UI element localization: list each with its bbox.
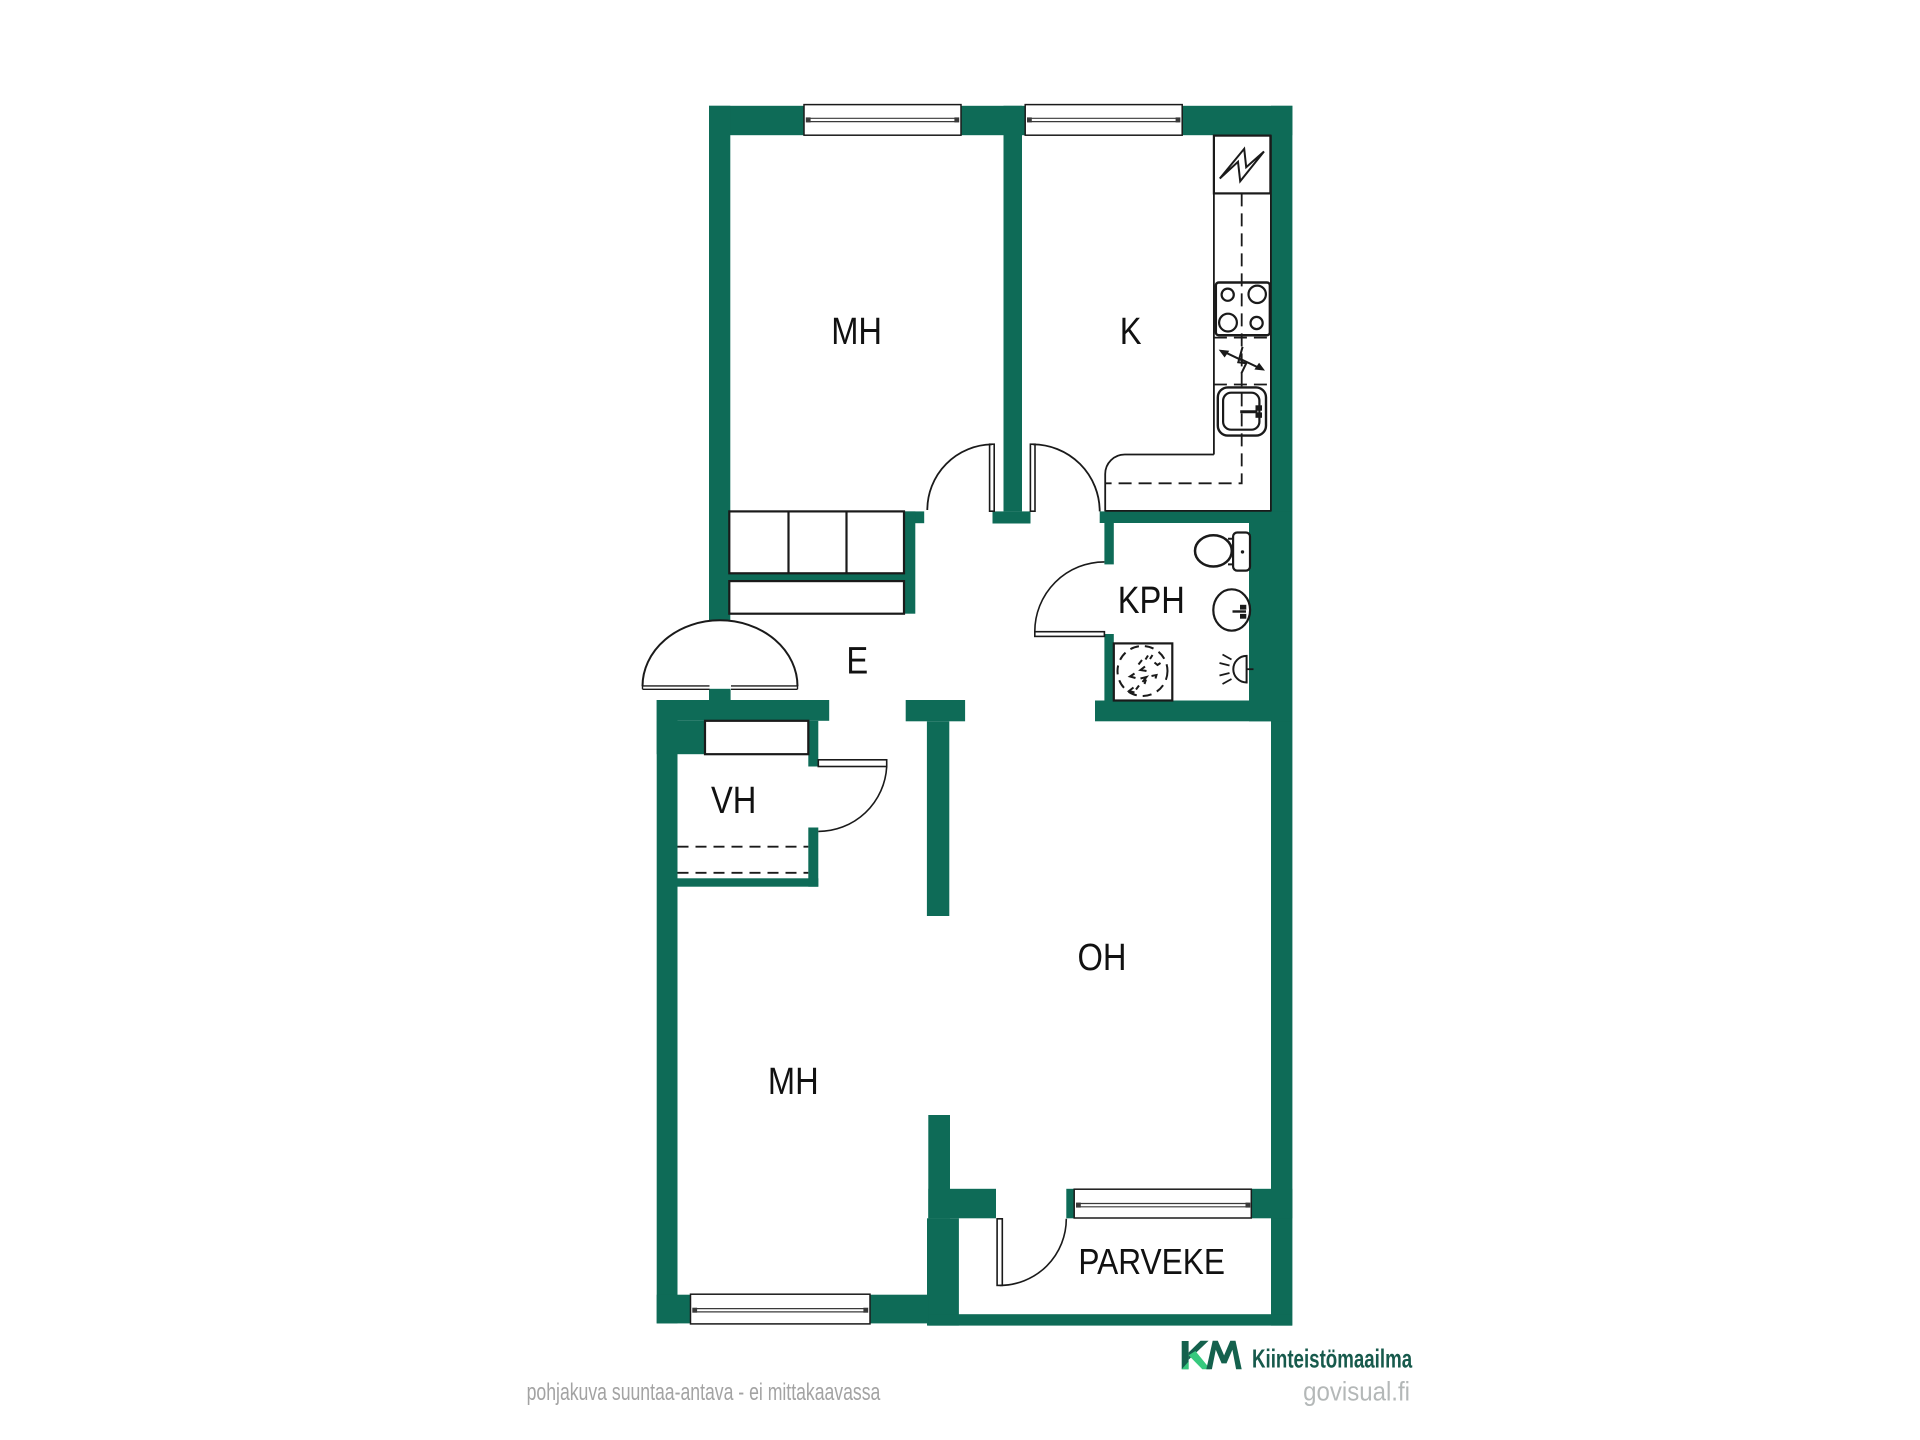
svg-text:MH: MH [768, 1060, 819, 1103]
svg-text:K: K [1120, 310, 1142, 353]
svg-text:MH: MH [831, 310, 882, 353]
svg-text:OH: OH [1077, 936, 1126, 979]
svg-text:KPH: KPH [1118, 578, 1185, 621]
svg-text:PARVEKE: PARVEKE [1078, 1242, 1225, 1282]
svg-text:E: E [846, 639, 868, 682]
svg-text:Kiinteistömaailma: Kiinteistömaailma [1252, 1343, 1412, 1373]
svg-text:VH: VH [711, 779, 756, 822]
svg-text:govisual.fi: govisual.fi [1303, 1377, 1410, 1407]
svg-text:pohjakuva suuntaa-antava - ei: pohjakuva suuntaa-antava - ei mittakaava… [527, 1379, 881, 1405]
